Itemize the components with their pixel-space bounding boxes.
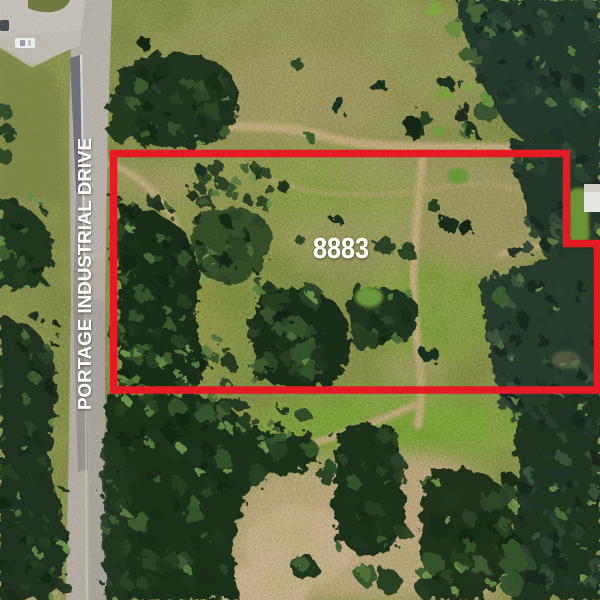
svg-text:8883: 8883 [313, 233, 369, 265]
svg-text:PORTAGE INDUSTRIAL DRIVE: PORTAGE INDUSTRIAL DRIVE [75, 138, 95, 410]
